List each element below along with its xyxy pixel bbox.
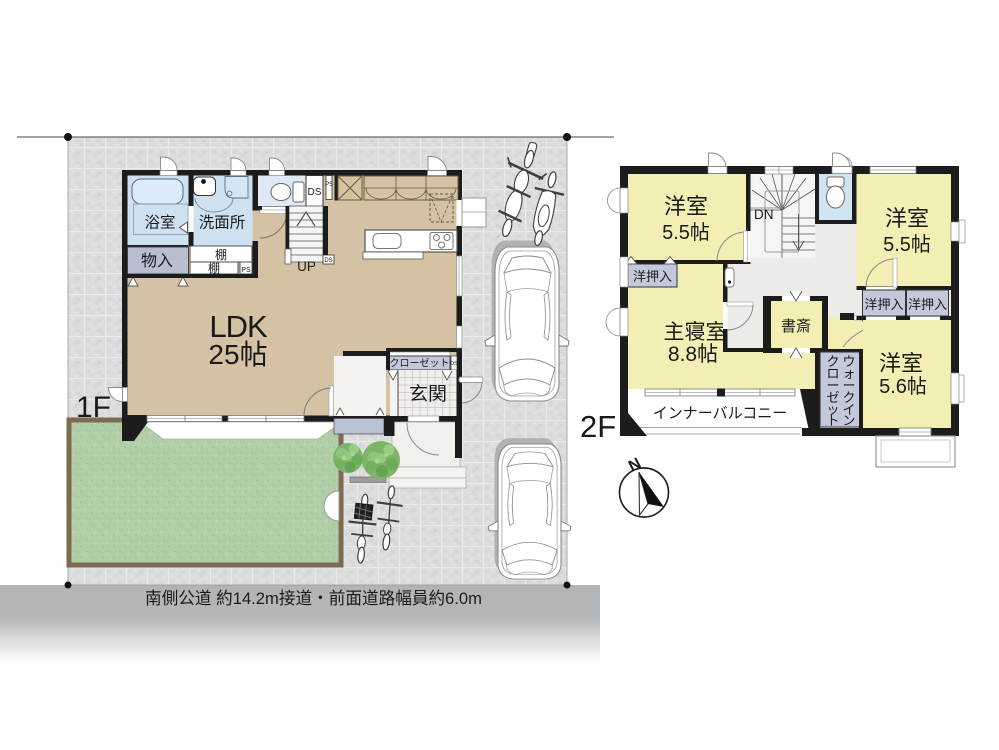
svg-text:25帖: 25帖 bbox=[208, 339, 267, 370]
svg-text:PS: PS bbox=[325, 182, 333, 188]
svg-text:洋押入: 洋押入 bbox=[633, 269, 672, 284]
svg-text:5.5帖: 5.5帖 bbox=[662, 221, 710, 244]
svg-text:洋押入: 洋押入 bbox=[864, 297, 903, 312]
svg-text:1F: 1F bbox=[76, 391, 111, 424]
svg-text:洋押入: 洋押入 bbox=[908, 297, 947, 312]
svg-text:5.5帖: 5.5帖 bbox=[883, 233, 931, 256]
svg-text:8.8帖: 8.8帖 bbox=[668, 343, 718, 366]
svg-text:洋室: 洋室 bbox=[885, 206, 929, 231]
svg-text:DS: DS bbox=[324, 258, 332, 264]
svg-text:棚: 棚 bbox=[215, 247, 227, 262]
svg-text:5.6帖: 5.6帖 bbox=[879, 375, 927, 398]
svg-text:PS: PS bbox=[241, 267, 251, 274]
svg-text:ン: ン bbox=[842, 413, 855, 428]
svg-text:書斎: 書斎 bbox=[781, 317, 811, 335]
svg-text:棚: 棚 bbox=[208, 261, 220, 276]
svg-text:浴室: 浴室 bbox=[144, 214, 175, 232]
svg-text:主寝室: 主寝室 bbox=[664, 321, 727, 344]
svg-text:DS: DS bbox=[308, 187, 322, 198]
svg-text:DN: DN bbox=[754, 207, 774, 222]
svg-text:インナーバルコニー: インナーバルコニー bbox=[653, 405, 788, 422]
svg-text:物入: 物入 bbox=[141, 252, 173, 270]
svg-text:クローゼット: クローゼット bbox=[390, 358, 450, 370]
svg-text:DS: DS bbox=[450, 361, 458, 367]
svg-text:2F: 2F bbox=[580, 409, 616, 444]
svg-text:ト: ト bbox=[826, 413, 839, 428]
svg-text:南側公道 約14.2m接道・前面道路幅員約6.0m: 南側公道 約14.2m接道・前面道路幅員約6.0m bbox=[145, 589, 482, 608]
svg-text:洋室: 洋室 bbox=[664, 194, 708, 219]
svg-text:洋室: 洋室 bbox=[879, 351, 923, 376]
svg-text:UP: UP bbox=[297, 259, 316, 274]
svg-text:玄関: 玄関 bbox=[409, 383, 447, 405]
svg-text:洗面所: 洗面所 bbox=[199, 214, 246, 232]
